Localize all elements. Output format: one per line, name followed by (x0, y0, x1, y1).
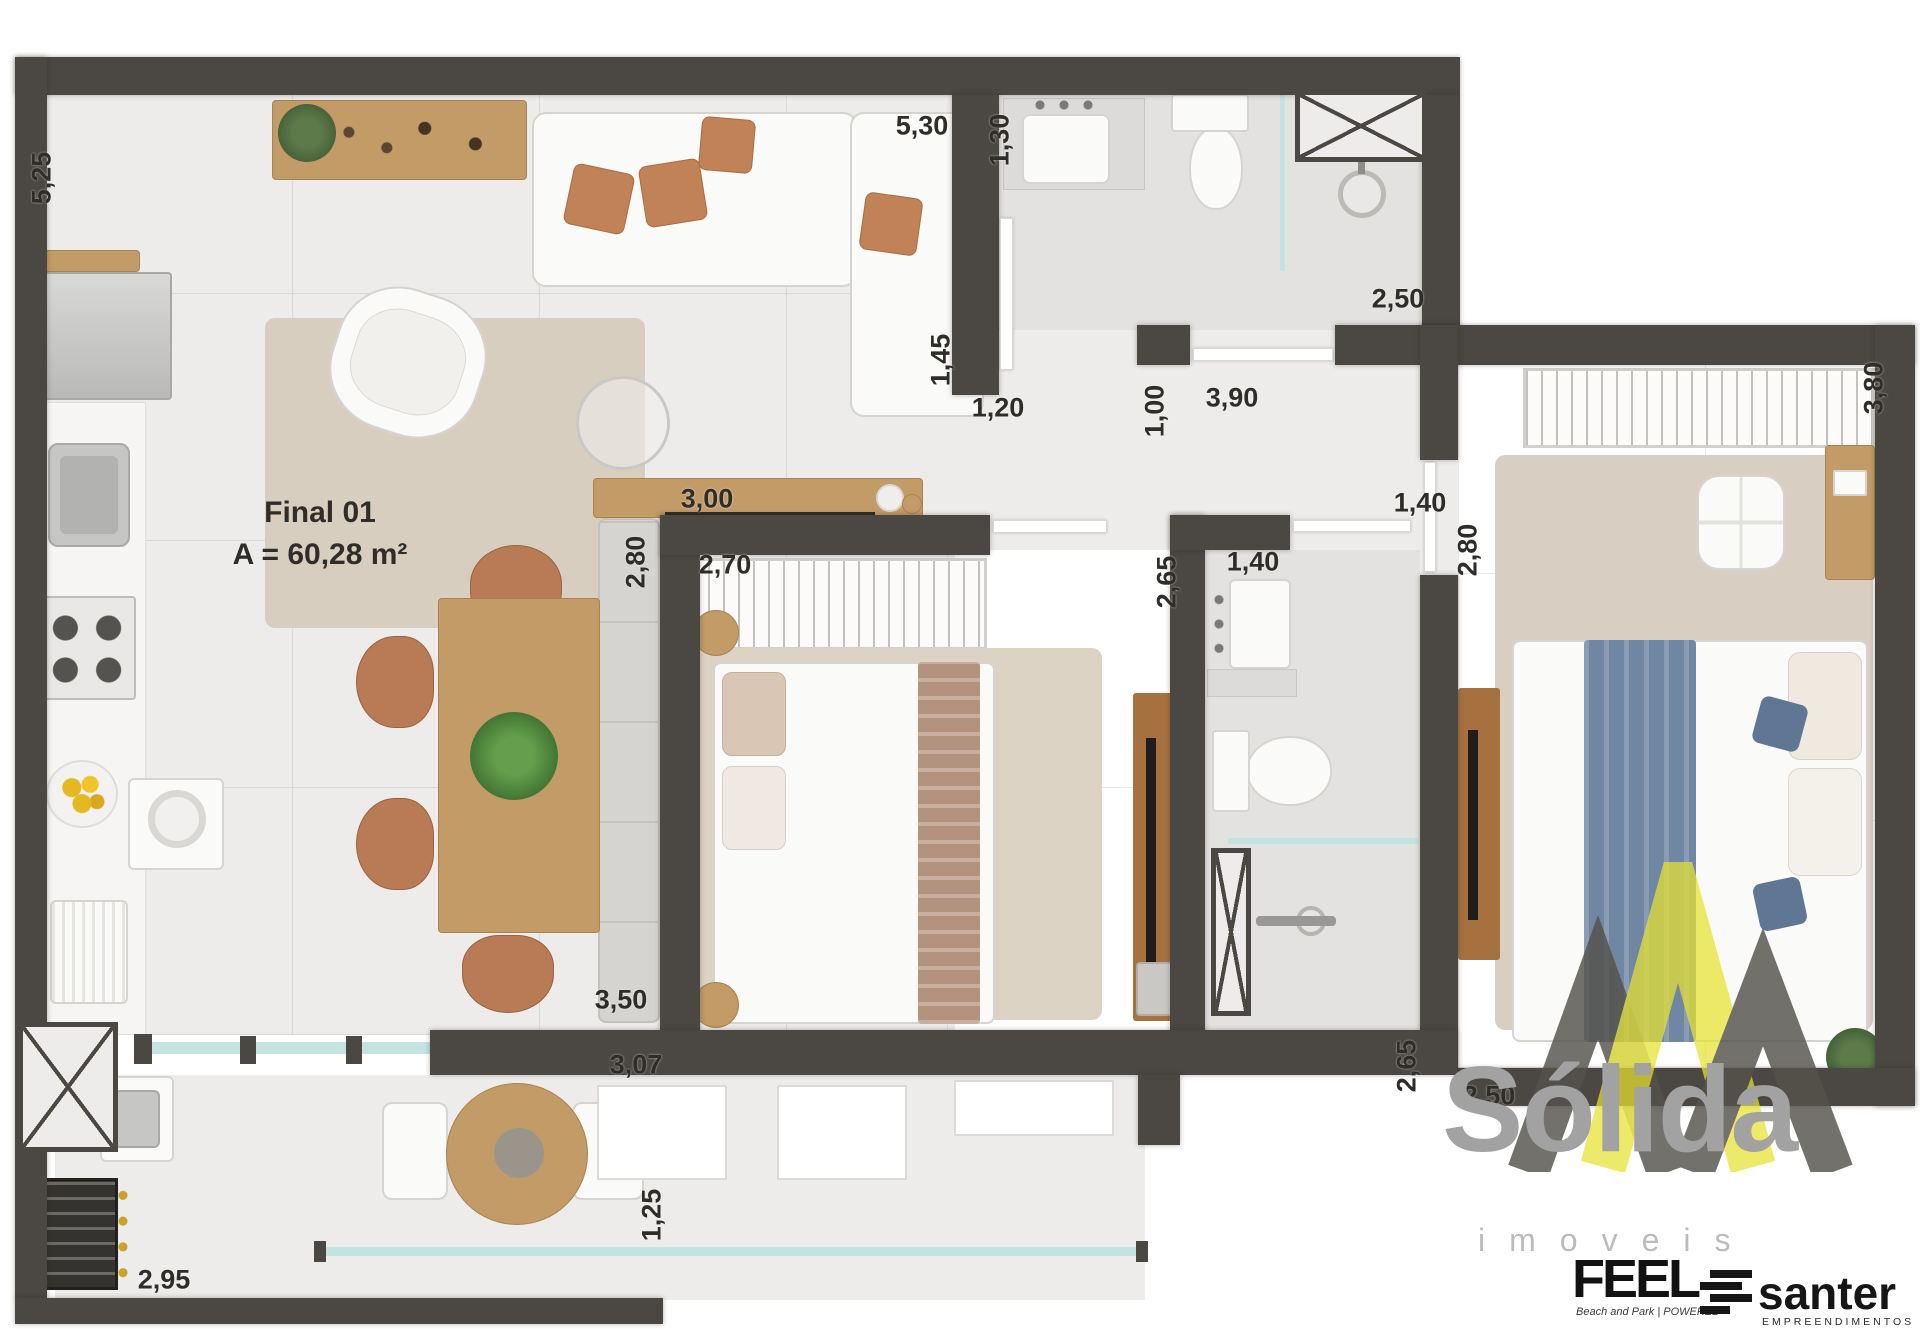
dimension-label: 3,50 (595, 985, 648, 1016)
door-bathroom-2 (1293, 520, 1411, 532)
dimension-label: 2,95 (138, 1265, 191, 1296)
dimension-label: 3,80 (1859, 362, 1890, 415)
wall-bath2-right-lower (1420, 575, 1458, 1068)
window-box (597, 1085, 727, 1180)
dimension-label: 5,25 (27, 152, 58, 205)
bath2-shower-faucet (1256, 916, 1336, 926)
stove (38, 596, 136, 700)
bed2-pillow (722, 672, 786, 756)
service-sink-basin (114, 1090, 160, 1148)
ottoman (1697, 475, 1785, 570)
bath2-toilet-tank (1212, 730, 1250, 812)
balcony-railing-glass (318, 1247, 1144, 1256)
decor-bowl (876, 484, 904, 512)
railing-post (314, 1241, 326, 1262)
wall-bath2-right-upper (1420, 325, 1458, 460)
bath2-sink (1229, 579, 1291, 669)
solida-logo: Sólida (1442, 1048, 1796, 1170)
railing-post (1136, 1241, 1148, 1262)
grill-knobs (118, 1188, 128, 1280)
santer-logo-subtitle: EMPREENDIMENTOS (1762, 1316, 1914, 1328)
shower-door-hatch-bath2 (1211, 848, 1251, 1016)
coffee-table-glass (576, 376, 670, 470)
santer-logo-icon (1700, 1270, 1752, 1318)
dimension-label: 1,30 (985, 114, 1016, 167)
dimension-label: 2,70 (699, 550, 752, 581)
balcony-chair (382, 1102, 448, 1200)
dimension-label: 3,00 (681, 484, 734, 515)
tv-bedroom-2 (1146, 738, 1156, 970)
wall-master-right (1875, 325, 1915, 1106)
bed2-runner (918, 662, 980, 1024)
fruit-plate (46, 760, 118, 828)
shaft-hatch-bath1 (1295, 90, 1427, 162)
door-mullion (134, 1034, 152, 1064)
sofa-pillow (562, 162, 636, 236)
console-plant (278, 104, 336, 162)
door-bathroom-1 (1000, 218, 1013, 370)
dimension-label: 1,45 (926, 334, 957, 387)
dimension-label: 1,40 (1227, 547, 1280, 578)
door-suite-corridor (1193, 348, 1333, 361)
wall-bath2-top (1170, 515, 1290, 550)
wardrobe-master (1523, 368, 1875, 448)
bath2-toilet-bowl (1246, 736, 1332, 806)
wall-bath1-right (1422, 95, 1460, 330)
dimension-label: 2,80 (1453, 524, 1484, 577)
wall-balcony-bottom-edge (15, 1298, 663, 1324)
master-pillow (1788, 768, 1862, 876)
decor-vase (902, 494, 922, 514)
dimension-label: 2,80 (621, 536, 652, 589)
dining-table-plant (470, 712, 558, 800)
bath1-shower-drain (1338, 170, 1386, 218)
bed2-pillow (722, 766, 786, 850)
dining-chair (356, 636, 434, 728)
living-sliding-door-glass (138, 1042, 440, 1054)
bath1-sink (1022, 114, 1110, 184)
dimension-label: 2,50 (1372, 284, 1425, 315)
door-mullion (346, 1036, 362, 1064)
bath1-toilet-tank (1171, 94, 1249, 132)
unit-name: Final 01 (210, 496, 430, 530)
unit-area: A = 60,28 m² (210, 538, 430, 572)
dimension-label: 3,07 (610, 1050, 663, 1081)
window-box (777, 1085, 907, 1180)
dining-chair (462, 935, 554, 1013)
wall-suite-top-left (1137, 325, 1190, 365)
bath1-faucet-dots (1034, 100, 1094, 110)
sofa-pillow (858, 191, 924, 257)
refrigerator (32, 272, 172, 400)
bath2-faucet-dots (1214, 592, 1224, 656)
dimension-label: 2,65 (1152, 556, 1183, 609)
floor-plan: Final 01 A = 60,28 m² 5,255,301,301,451,… (0, 0, 1920, 1329)
wall-top (15, 57, 1460, 95)
dimension-label: 2,65 (1392, 1040, 1423, 1093)
wall-bedroom2-left (660, 515, 700, 1035)
dimension-label: 1,40 (1394, 488, 1447, 519)
bench-sofa (598, 518, 660, 1023)
dining-chair (356, 798, 434, 890)
washing-machine-door (148, 790, 206, 848)
santer-logo: santer (1758, 1266, 1896, 1320)
sofa-pillow (698, 116, 757, 175)
kitchen-sink-basin (60, 456, 118, 534)
dimension-label: 1,00 (1140, 385, 1171, 438)
door-mullion (240, 1036, 256, 1064)
dimension-label: 1,20 (972, 393, 1025, 424)
master-shelf-book (1833, 470, 1867, 496)
wall-balcony-stub (1138, 1075, 1180, 1145)
wall-bottom-main (430, 1030, 1457, 1075)
shaft-hatch-service (18, 1022, 118, 1152)
dimension-label: 3,90 (1206, 383, 1259, 414)
condenser-box (954, 1080, 1114, 1136)
dimension-label: 5,30 (896, 111, 949, 142)
sofa-pillow (638, 158, 709, 229)
bath2-shower-glass-shelf (1228, 838, 1418, 844)
dimension-label: 1,25 (637, 1189, 668, 1242)
laundry-tank-sink (50, 900, 128, 1004)
bath1-shower-glass (1280, 93, 1285, 271)
feel-logo: FEEL (1572, 1248, 1698, 1310)
tv-master (1468, 730, 1478, 920)
feel-logo-tagline: Beach and Park | POWERED (1576, 1306, 1720, 1318)
unit-label: Final 01 A = 60,28 m² (210, 496, 430, 572)
tv-panel-master (1458, 688, 1500, 960)
bath1-toilet-bowl (1189, 126, 1243, 210)
bath2-counter (1207, 669, 1297, 697)
balcony-table-bowl (494, 1128, 544, 1178)
door-bedroom-2 (993, 520, 1107, 533)
master-side-shelf (1825, 445, 1875, 580)
